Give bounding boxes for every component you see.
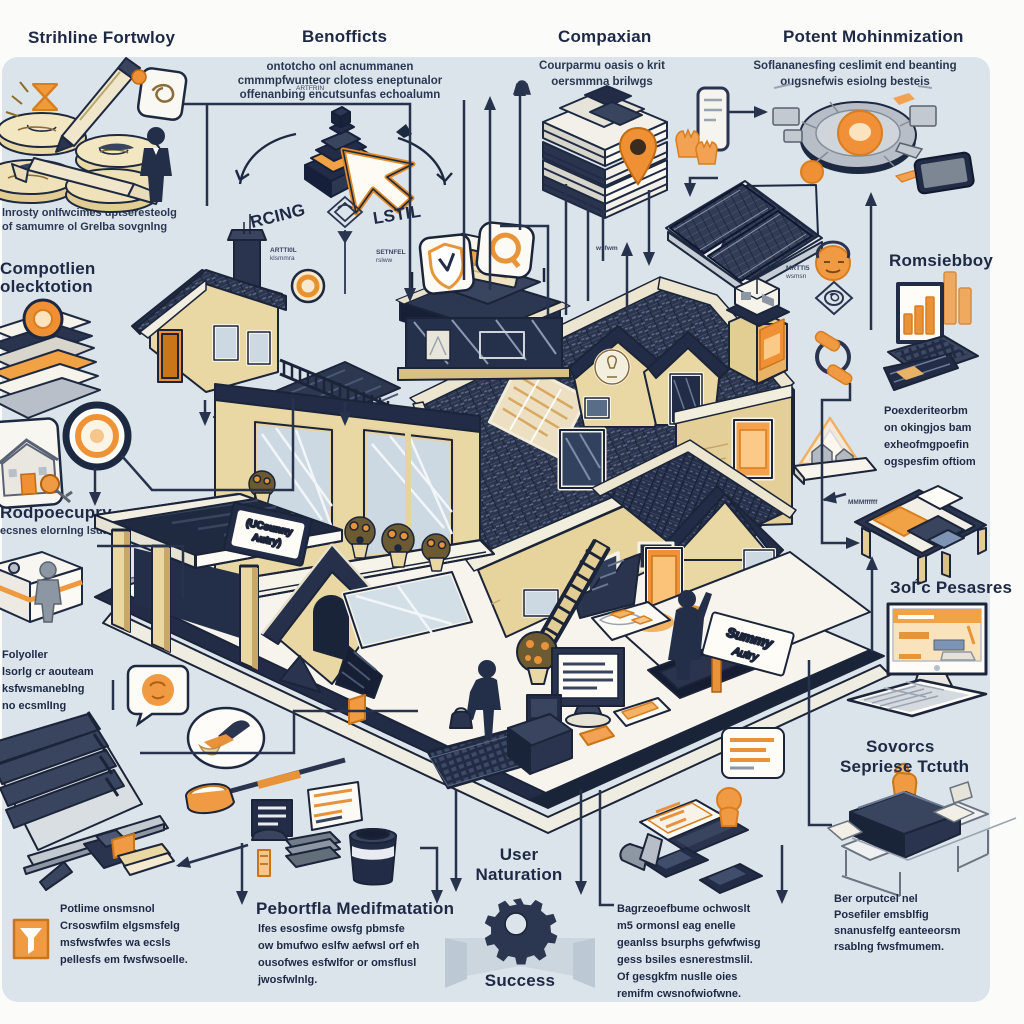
svg-text:Potent Mohinmization: Potent Mohinmization [783, 27, 964, 46]
svg-text:wsmsn: wsmsn [785, 273, 807, 280]
svg-text:Strihline Fortwloy: Strihline Fortwloy [28, 28, 176, 47]
svg-text:gess bsiles esnerestmslil.: gess bsiles esnerestmslil. [617, 954, 753, 966]
svg-text:ksfwsmaneblng: ksfwsmaneblng [2, 683, 85, 695]
svg-text:Potlime onsmsnol: Potlime onsmsnol [60, 903, 155, 915]
svg-text:m5 ormonsl eag enelle: m5 ormonsl eag enelle [617, 920, 736, 932]
svg-text:lfes esosfime owsfg pbmsfe: lfes esosfime owsfg pbmsfe [258, 923, 405, 935]
svg-text:geanlss bsurphs gefwfwisg: geanlss bsurphs gefwfwisg [617, 937, 761, 949]
svg-text:on okingjos bam: on okingjos bam [884, 422, 972, 434]
svg-text:rsablng fwsfmumem.: rsablng fwsfmumem. [834, 941, 944, 953]
svg-text:remifm cwsnofwiofwne.: remifm cwsnofwiofwne. [617, 988, 741, 1000]
svg-text:MMMffffff: MMMffffff [848, 499, 878, 506]
svg-text:Naturation: Naturation [476, 865, 563, 884]
svg-text:Posefiler emsblfig: Posefiler emsblfig [834, 909, 929, 921]
svg-text:Romsiebboy: Romsiebboy [889, 251, 993, 270]
svg-text:cmmmpfwunteor clotess eneptuna: cmmmpfwunteor clotess eneptunalor [238, 75, 443, 87]
svg-text:Benofficts: Benofficts [302, 27, 387, 46]
svg-text:ow bmufwo eslfw aefwsl orf eh: ow bmufwo eslfw aefwsl orf eh [258, 940, 420, 952]
svg-text:snanusfelfg eanteeorsm: snanusfelfg eanteeorsm [834, 925, 961, 937]
svg-text:msfwsfwfes wa ecsls: msfwsfwfes wa ecsls [60, 937, 171, 949]
svg-text:User: User [500, 845, 539, 864]
svg-text:ousofwes esfwlfor or omsflusl: ousofwes esfwlfor or omsflusl [258, 957, 416, 969]
svg-text:Courparmu oasis o krit: Courparmu oasis o krit [539, 60, 665, 72]
svg-text:ARTFRIN: ARTFRIN [296, 85, 324, 92]
svg-text:Sovorcs: Sovorcs [866, 737, 935, 756]
svg-text:Sepriese Tctuth: Sepriese Tctuth [840, 757, 969, 776]
svg-text:ARTTI0L: ARTTI0L [270, 247, 297, 254]
svg-text:klsmmra: klsmmra [270, 255, 295, 262]
svg-text:of samumre ol Grelba sovgnlng: of samumre ol Grelba sovgnlng [2, 221, 167, 233]
svg-text:Compaxian: Compaxian [558, 27, 651, 46]
svg-text:Compotlien: Compotlien [0, 259, 96, 278]
svg-text:exheofmgpoefin: exheofmgpoefin [884, 439, 969, 451]
svg-text:offenanbing encutsunfas echoal: offenanbing encutsunfas echoalumn [240, 89, 441, 101]
svg-text:lsorlg cr aouteam: lsorlg cr aouteam [2, 666, 94, 678]
svg-text:Bagrzeoefbume ochwoslt: Bagrzeoefbume ochwoslt [617, 903, 751, 915]
svg-text:rslww: rslww [376, 257, 393, 264]
svg-text:Success: Success [485, 971, 555, 990]
svg-text:ЗoЃc Pesasres: ЗoЃc Pesasres [890, 578, 1012, 597]
svg-text:Poexderiteorbm: Poexderiteorbm [884, 405, 968, 417]
svg-text:Soflananesfing ceslimit end be: Soflananesfing ceslimit end beanting [753, 60, 956, 72]
svg-text:Ber orputcel nel: Ber orputcel nel [834, 893, 918, 905]
svg-text:SETNFEL: SETNFEL [376, 249, 406, 256]
svg-text:olecktotion: olecktotion [0, 277, 93, 296]
svg-text:ougsnefwis esiolng besteis: ougsnefwis esiolng besteis [780, 76, 930, 88]
svg-text:Folyoller: Folyoller [2, 649, 49, 661]
svg-text:MRTTI5: MRTTI5 [786, 265, 810, 272]
svg-text:pellesfs em fwsfwsoelle.: pellesfs em fwsfwsoelle. [60, 954, 188, 966]
svg-text:no ecsmlIng: no ecsmlIng [2, 700, 66, 712]
svg-text:jwosfwlnlg.: jwosfwlnlg. [257, 974, 317, 986]
svg-text:ontotcho onl acnummanen: ontotcho onl acnummanen [267, 61, 414, 73]
svg-text:Of gesgkfm nuslle oies: Of gesgkfm nuslle oies [617, 971, 737, 983]
svg-text:oersmmna brilwgs: oersmmna brilwgs [551, 76, 653, 88]
svg-text:wsfwm: wsfwm [595, 245, 618, 252]
svg-text:Pebortfla Medifmatation: Pebortfla Medifmatation [256, 899, 454, 918]
svg-text:ogspesfim oftiom: ogspesfim oftiom [884, 456, 976, 468]
svg-text:Crsoswfilm elgsmsfelg: Crsoswfilm elgsmsfelg [60, 920, 180, 932]
